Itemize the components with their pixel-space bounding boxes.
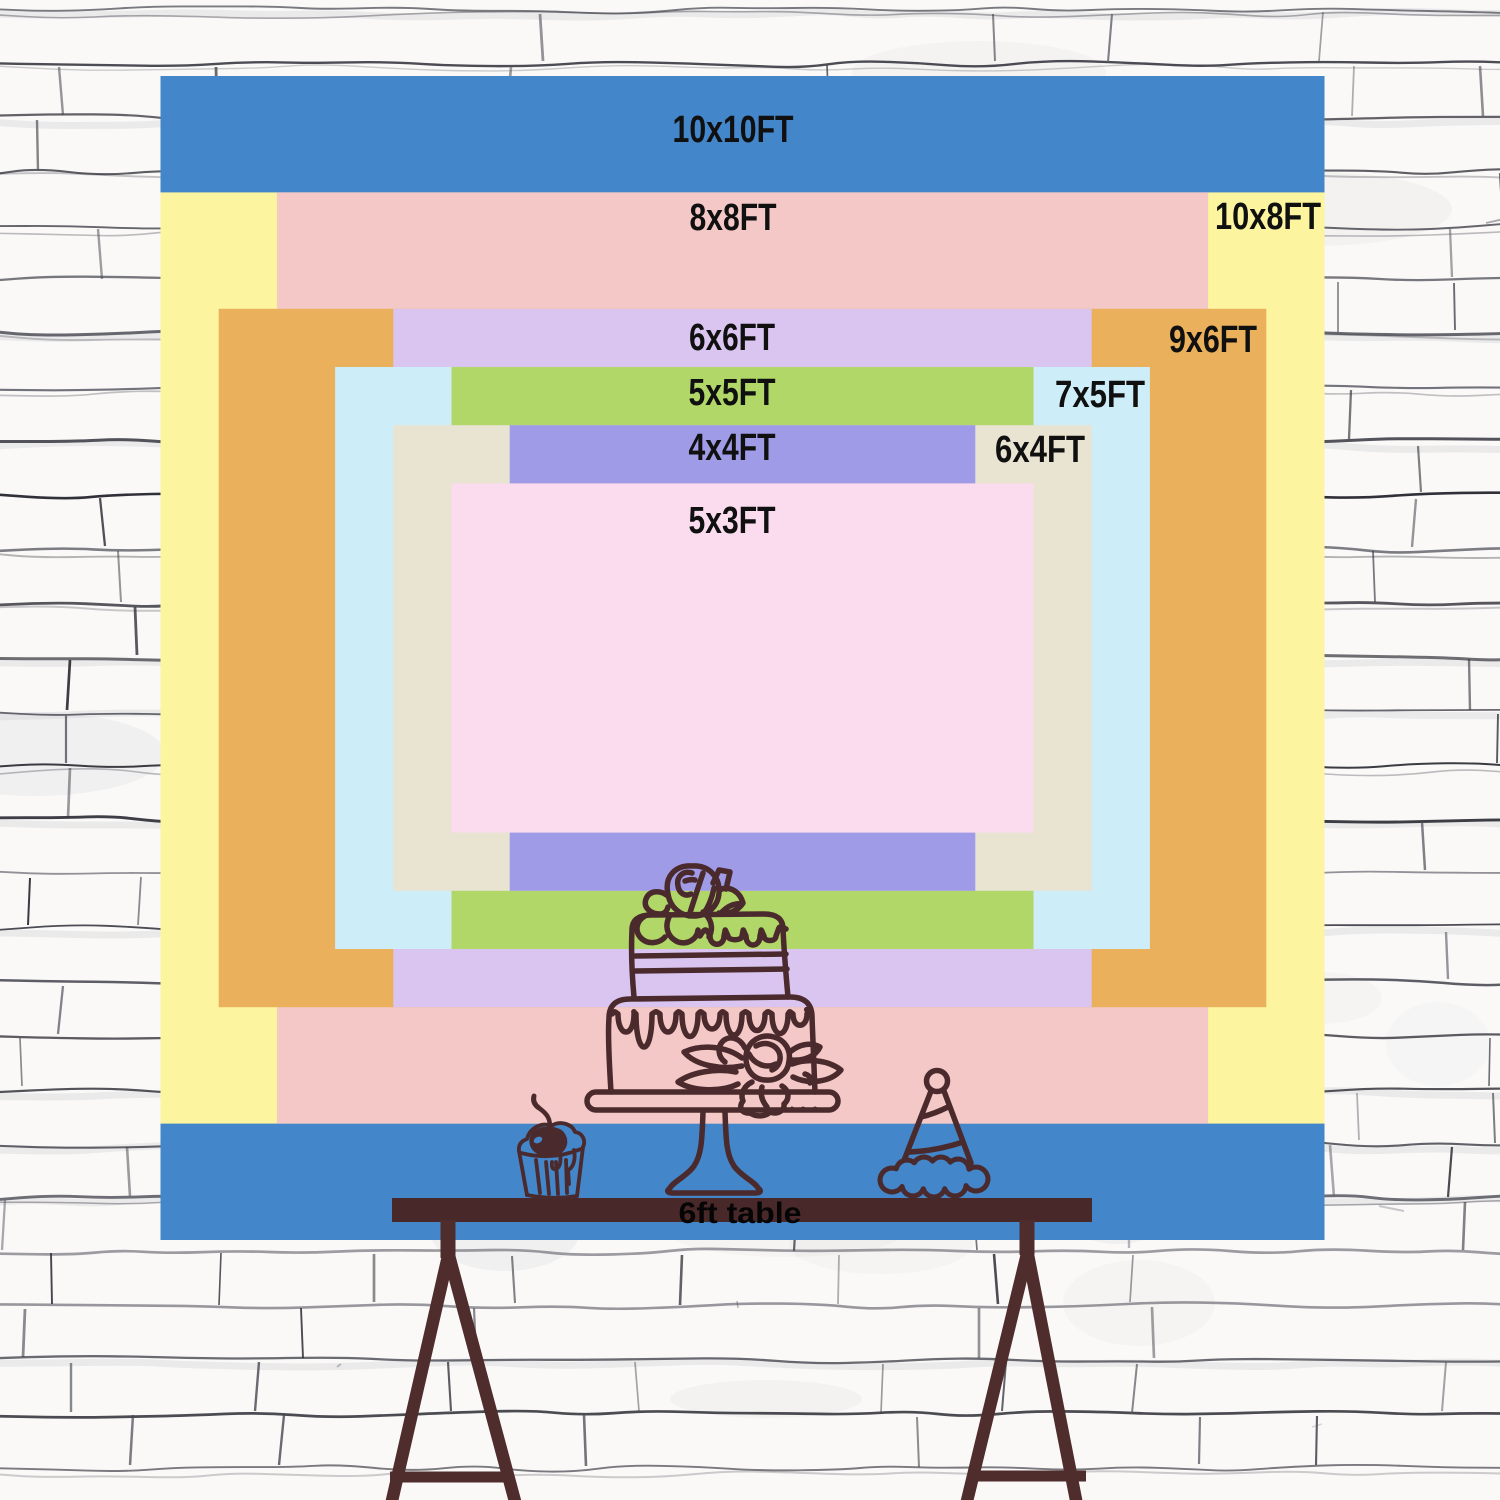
svg-text:6x6FT: 6x6FT bbox=[689, 317, 775, 359]
svg-text:6ft table: 6ft table bbox=[679, 1197, 802, 1230]
svg-text:8x8FT: 8x8FT bbox=[690, 197, 777, 239]
svg-text:5x5FT: 5x5FT bbox=[689, 372, 776, 414]
svg-text:6x4FT: 6x4FT bbox=[995, 429, 1085, 471]
svg-text:9x6FT: 9x6FT bbox=[1169, 319, 1257, 361]
svg-text:7x5FT: 7x5FT bbox=[1055, 374, 1145, 416]
svg-text:5x3FT: 5x3FT bbox=[689, 500, 776, 542]
svg-text:10x10FT: 10x10FT bbox=[673, 109, 794, 151]
svg-text:4x4FT: 4x4FT bbox=[689, 427, 776, 469]
svg-text:10x8FT: 10x8FT bbox=[1215, 196, 1321, 238]
